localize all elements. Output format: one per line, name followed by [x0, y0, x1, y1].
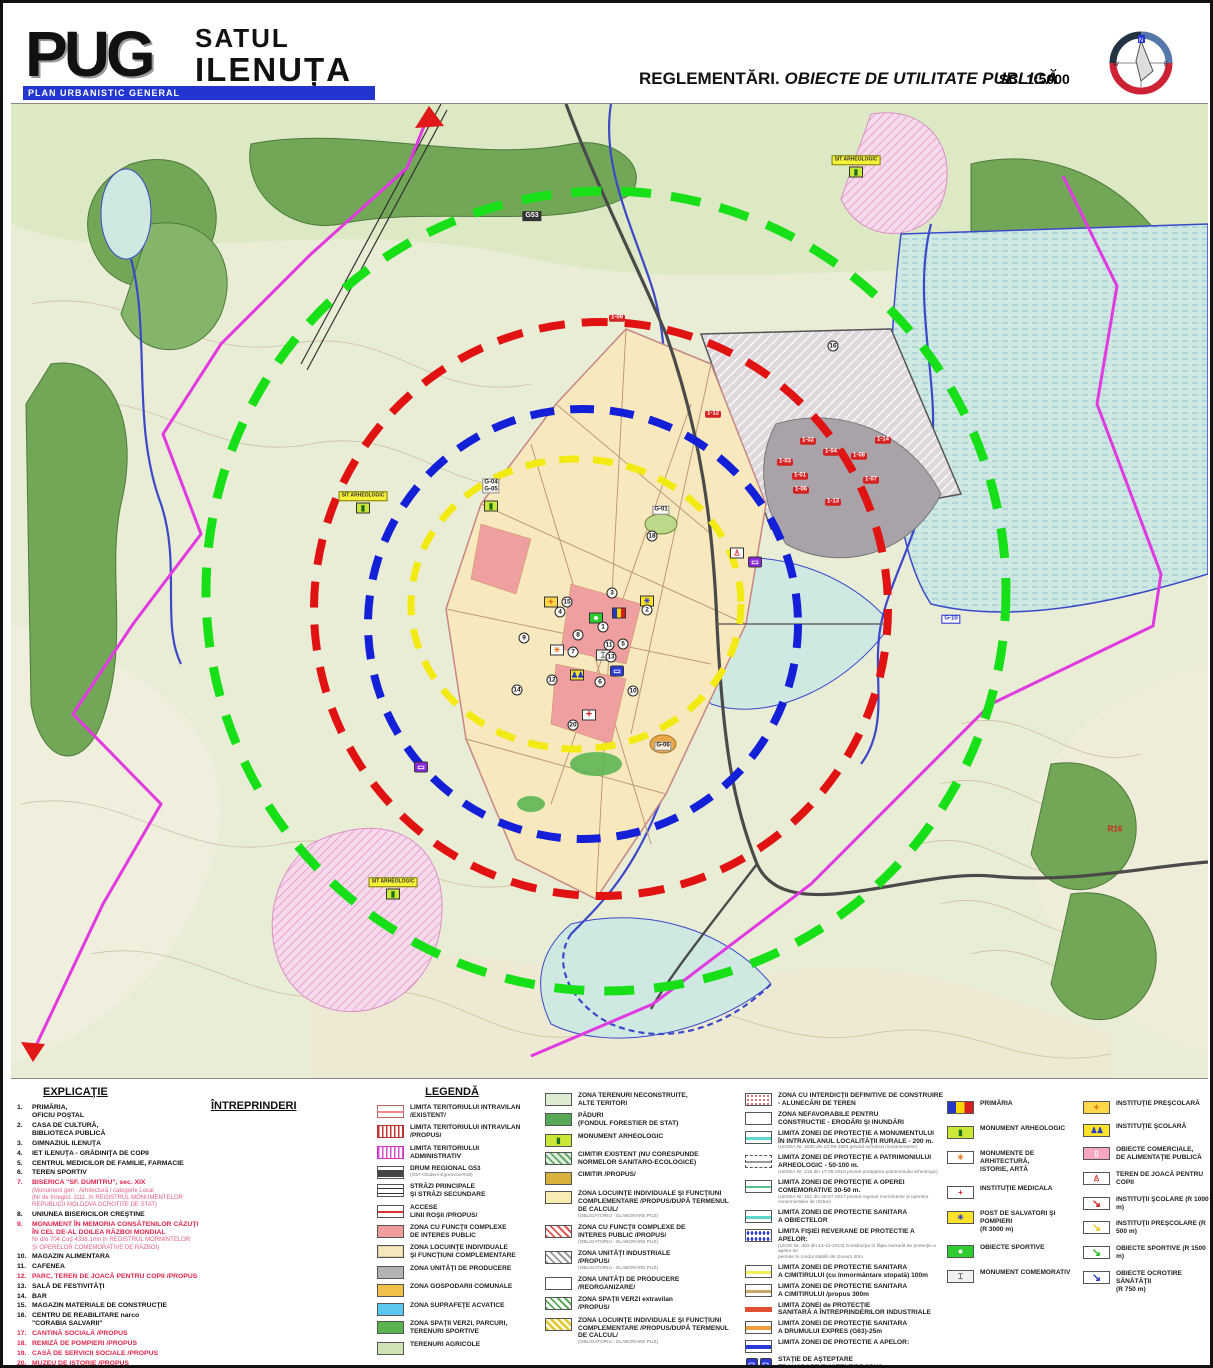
map-label: 1-12 — [705, 411, 721, 418]
map-number-marker: 13 — [606, 652, 617, 663]
item-number: 18. — [17, 1340, 32, 1348]
legend-row: LIMITA ZONEI DE PROTECTIE SANITARA A OBI… — [745, 1209, 943, 1225]
map-label: 1-03 — [777, 459, 793, 466]
legend-row: PĂDURI (FONDUL FORESTIER DE STAT) — [545, 1112, 741, 1128]
legend-label: LIMITA FIŞIEI REVERANE DE PROTECTIE A AP… — [778, 1228, 915, 1243]
g-objects-column: ÎNTREPRINDERI — [211, 1086, 375, 1118]
legend-row: LIMITA ZONEI de PROTECŢIE SANITARĂ A ÎNT… — [745, 1302, 943, 1318]
legend-row: ZONA CU FUNCŢII COMPLEXE DE INTERES PUBL… — [545, 1224, 741, 1246]
map-number-marker: 5 — [618, 639, 629, 650]
village-label-ilenuta: ILENUȚA — [195, 51, 352, 89]
legend-row: ZONA LOCUINŢE INDIVIDUALE ŞI FUNCŢIUNI C… — [545, 1190, 741, 1219]
legend-label: ZONA SUPRAFEŢE ACVATICE — [410, 1302, 505, 1309]
compass-rose-icon: N E S W — [1109, 31, 1173, 95]
legend-label: CIMITIR /PROPUS/ — [578, 1171, 636, 1178]
item-number: 15. — [17, 1302, 32, 1310]
explicatie-item: 18. REMIZĂ DE POMPIERI /PROPUS — [17, 1340, 209, 1348]
legend-label: LIMITA ZONEI DE PROTECTIE SANITARA A CIM… — [778, 1264, 928, 1279]
sheet-title: REGLEMENTĂRI. OBIECTE DE UTILITATE PUBLI… — [639, 69, 1058, 89]
legend-label: ZONA UNITĂŢI INDUSTRIALE /PROPUS/ — [578, 1250, 670, 1265]
archeology-icon: ▮ — [356, 503, 370, 514]
legend-label: OBIECTE SPORTIVE — [980, 1244, 1044, 1252]
map-number-marker: 11 — [604, 640, 615, 651]
legend-symbol-icon — [1083, 1221, 1110, 1234]
legend-swatch — [745, 1155, 772, 1168]
legend-row: ZONA SPAŢII VERZI extravilan /PROPUS/ — [545, 1296, 741, 1312]
legend-label: ZONA LOCUINŢE INDIVIDUALE ŞI FUNCŢIUNI C… — [578, 1190, 729, 1213]
school-icon: ♟♟ — [570, 670, 584, 681]
legend-swatch — [377, 1146, 404, 1159]
item-text: MUZEU DE ISTORIE /PROPUS — [32, 1360, 129, 1367]
legend-row: OBIECTE OCROTIRE SĂNĂTĂŢII (R 750 m) — [1083, 1270, 1211, 1294]
legenda-list-1: LIMITA TERITORIULUI INTRAVILAN /EXISTENT… — [377, 1104, 545, 1355]
legend-row: LIMITA ZONEI DE PROTECTIE SANITARA A CIM… — [745, 1264, 943, 1280]
legend-label: PĂDURI (FONDUL FORESTIER DE STAT) — [578, 1112, 678, 1127]
legend-label: STRĂZI PRINCIPALE ŞI STRĂZI SECUNDARE — [410, 1183, 485, 1198]
map-number-marker: 4 — [555, 607, 566, 618]
legend-label: ZONA UNITĂŢI DE PRODUCERE — [410, 1265, 511, 1272]
item-number: 3. — [17, 1140, 32, 1148]
legend-label: LIMITA TERITORIULUI ADMINISTRATIV — [410, 1145, 479, 1160]
legend-note: (OBLIGATORIU - ELABORARE PUZ) — [578, 1266, 670, 1272]
bus-station-proposed-icon: ▭ — [748, 557, 762, 568]
explicatie-item: 13. SALĂ DE FESTIVITĂŢI — [17, 1283, 209, 1291]
legend-label: OBIECTE OCROTIRE SĂNĂTĂŢII (R 750 m) — [1116, 1270, 1211, 1294]
legend-row: ZONA SPAŢII VERZI, PARCURI, TERENURI SPO… — [377, 1320, 545, 1336]
legend-symbol-icon — [947, 1101, 974, 1114]
medical-icon: + — [582, 710, 596, 721]
legend-symbol-icon: ♟♟ — [1083, 1124, 1110, 1137]
item-text: CENTRU DE REABILITARE narco "CORABIA SAL… — [32, 1312, 139, 1327]
legend-label: ZONA LOCUINŢE INDIVIDUALE ŞI FUNCŢIUNI C… — [410, 1244, 516, 1259]
explicatie-item: 11. CAFENEA — [17, 1263, 209, 1271]
legend-swatch — [545, 1093, 572, 1106]
explicatie-item: 1. PRIMĂRIA, OFICIU POŞTAL — [17, 1104, 209, 1121]
legend-row: INSTITUŢII ŞCOLARE (R 1000 m) — [1083, 1196, 1211, 1212]
legend-swatch — [377, 1205, 404, 1218]
legend-row: PRIMĂRIA — [947, 1100, 1077, 1114]
explicatie-item: 17. CANTINĂ SOCIALĂ /PROPUS — [17, 1330, 209, 1338]
explicatie-item: 2. CASA DE CULTURĂ, BIBLIOTECA PUBLICĂ — [17, 1122, 209, 1139]
item-note: (Monument gen - Arhitectură / categorie … — [32, 1188, 183, 1210]
legend-swatch — [377, 1166, 404, 1179]
bus-station-proposed-icon: ▭ — [414, 762, 428, 773]
legend-label: MONUMENTE DE ARHITECTURĂ, ISTORIE, ARTĂ — [980, 1150, 1077, 1174]
explicatie-item: 20. MUZEU DE ISTORIE /PROPUS — [17, 1360, 209, 1368]
map-label: SIT ARHEOLOGIC — [369, 877, 418, 887]
legend-swatch — [377, 1284, 404, 1297]
legend-row: ZONA GOSPODARII COMUNALE — [377, 1283, 545, 1297]
item-note: Nr d/o 704 Cod 4338.1mn în REGISTRUL MOR… — [32, 1237, 198, 1252]
legend-row: LIMITA ZONEI DE PROTECŢIE A OPEREI COMEM… — [745, 1179, 943, 1206]
legend-label: MONUMENT ARHEOLOGIC — [980, 1125, 1065, 1133]
legenda-column-2: ZONA TERENURI NECONSTRUITE, ALTE TERITOR… — [545, 1092, 741, 1351]
legend-label: INSTITUŢII ŞCOLARE (R 1000 m) — [1116, 1196, 1211, 1212]
item-number: 8. — [17, 1211, 32, 1219]
item-number: 20. — [17, 1360, 32, 1368]
explicatie-item: 14. BAR — [17, 1293, 209, 1301]
legend-row: ZONA LOCUINŢE INDIVIDUALE ŞI FUNCŢIUNI C… — [545, 1317, 741, 1346]
compass-s: S — [1139, 88, 1143, 94]
legend-note: (LEGEA Nr. 1530 din 22-06-1993 privind o… — [778, 1145, 934, 1151]
map-number-marker: 7 — [568, 647, 579, 658]
legend-label: LIMITA ZONEI DE PROTECŢIE A OPEREI COMEM… — [778, 1179, 905, 1194]
item-number: 17. — [17, 1330, 32, 1338]
map-label: 1-09 — [609, 315, 625, 322]
legend-row: OBIECTE SPORTIVE (R 1500 m) — [1083, 1245, 1211, 1261]
map-number-marker: 16 — [828, 341, 839, 352]
legend-label: INSTITUŢII PREŞCOLARE (R 500 m) — [1116, 1220, 1211, 1236]
legend-row: ZONA SUPRAFEŢE ACVATICE — [377, 1302, 545, 1316]
sheet-title-normal: REGLEMENTĂRI. — [639, 69, 780, 88]
legend-note: (LEGEA Nr. 161 din 20-07-2017 privind re… — [778, 1195, 943, 1207]
legend-label: ZONA LOCUINŢE INDIVIDUALE ŞI FUNCŢIUNI C… — [578, 1317, 729, 1340]
legend-swatch — [745, 1265, 772, 1278]
legend-row: OBIECTE SPORTIVE — [947, 1244, 1077, 1258]
pug-logo: PUG — [25, 17, 152, 91]
legend-row: LIMITA TERITORIULUI INTRAVILAN /PROPUS/ — [377, 1124, 545, 1140]
item-text: REMIZĂ DE POMPIERI /PROPUS — [32, 1340, 137, 1347]
item-number: 11. — [17, 1263, 32, 1271]
item-text: CASA DE CULTURĂ, BIBLIOTECA PUBLICĂ — [32, 1122, 105, 1137]
legend-row: ▭▭ STAŢIE DE AŞTEPTARE TRANSPORT EXISTEN… — [745, 1356, 943, 1368]
legend-swatch — [377, 1321, 404, 1334]
legend-row: DRUM REGIONAL G53 (G57-Glodeni-Egorovca-… — [377, 1165, 545, 1179]
legenda-list-2: ZONA TERENURI NECONSTRUITE, ALTE TERITOR… — [545, 1092, 741, 1346]
map-area[interactable]: G53SIT ARHEOLOGICSIT ARHEOLOGICSIT ARHEO… — [11, 103, 1208, 1079]
item-text: CAFENEA — [32, 1263, 65, 1270]
map-number-marker: 9 — [519, 633, 530, 644]
legend-row: TERENURI AGRICOLE — [377, 1341, 545, 1355]
explicatie-column: EXPLICAŢIE 1. PRIMĂRIA, OFICIU POŞTAL 2.… — [17, 1086, 209, 1368]
compass-n: N — [1139, 38, 1143, 44]
legend-label: ZONA NEFAVORABILE PENTRU CONSTRUCTIE - E… — [778, 1111, 904, 1126]
legend-label: LIMITA ZONEI DE PROTECTIE SANITARA A CIM… — [778, 1283, 907, 1298]
legend-label: INSTITUŢIE PREŞCOLARĂ — [1116, 1100, 1200, 1108]
legend-symbol-icon: ✳ — [947, 1151, 974, 1164]
legend-row: LIMITA ZONEI DE PROTECTIE A APELOR: — [745, 1339, 943, 1353]
map-label: G53 — [522, 211, 541, 221]
item-number: 14. — [17, 1293, 32, 1301]
legend-label: ACCESE LINII ROŞII /PROPUS/ — [410, 1204, 477, 1219]
legend-swatch — [377, 1303, 404, 1316]
legend-swatch — [377, 1225, 404, 1238]
legend-swatch — [745, 1340, 772, 1353]
archeology-icon: ▮ — [484, 501, 498, 512]
map-number-marker: 2 — [642, 605, 653, 616]
symbols-list-1: PRIMĂRIA ▮ MONUMENT ARHEOLOGIC ✳ MONUMEN… — [947, 1100, 1077, 1283]
map-label: G-06 — [654, 742, 671, 751]
explicatie-item: 8. UNIUNEA BISERICILOR CREŞTINE — [17, 1211, 209, 1219]
item-text: PARC, TEREN DE JOACĂ PENTRU COPII /PROPU… — [32, 1273, 197, 1280]
explicatie-title: EXPLICAŢIE — [43, 1086, 209, 1098]
symbols-column-1: PRIMĂRIA ▮ MONUMENT ARHEOLOGIC ✳ MONUMEN… — [947, 1100, 1077, 1294]
map-number-marker: 15 — [562, 597, 573, 608]
item-number: 16. — [17, 1312, 32, 1329]
legend-swatch — [545, 1251, 572, 1264]
map-number-marker: 12 — [547, 675, 558, 686]
legend-label: PRIMĂRIA — [980, 1100, 1013, 1108]
legend-row: ♟♟ INSTITUŢIE ŞCOLARĂ — [1083, 1123, 1211, 1137]
item-text: BAR — [32, 1293, 47, 1300]
sheet-header: PUG SATUL ILENUȚA PLAN URBANISTIC GENERA… — [3, 3, 1210, 100]
legend-row: ZONA LOCUINŢE INDIVIDUALE ŞI FUNCŢIUNI C… — [377, 1244, 545, 1260]
legend-row: CIMITIR /PROPUS/ — [545, 1171, 741, 1185]
map-label: 1-06 — [793, 487, 809, 494]
explicatie-item: 16. CENTRU DE REABILITARE narco "CORABIA… — [17, 1312, 209, 1329]
legend-label: LIMITA TERITORIULUI INTRAVILAN /PROPUS/ — [410, 1124, 520, 1139]
legend-swatch — [545, 1191, 572, 1204]
pug-sheet: PUG SATUL ILENUȚA PLAN URBANISTIC GENERA… — [0, 0, 1213, 1368]
map-label: G-10 — [941, 615, 960, 624]
legend-swatch — [545, 1113, 572, 1126]
explicatie-item: 10. MAGAZIN ALIMENTARA — [17, 1253, 209, 1261]
legend-label: ZONA SPAŢII VERZI, PARCURI, TERENURI SPO… — [410, 1320, 507, 1335]
map-number-marker: 14 — [512, 685, 523, 696]
item-text: GIMNAZIUL ILENUŢA — [32, 1140, 101, 1147]
legend-note: (OBLIGATORIU - ELABORARE PUZ) — [578, 1340, 729, 1346]
legend-label: INSTITUŢIE MEDICALA — [980, 1185, 1053, 1193]
map-label: 1-14 — [875, 437, 891, 444]
legend-row: CIMITIR EXISTENT (NU CORESPUNDE NORMELOR… — [545, 1151, 741, 1167]
map-number-marker: 10 — [628, 686, 639, 697]
map-number-marker: 18 — [647, 531, 658, 542]
map-label: G-01 — [652, 506, 669, 515]
legend-note: (LEGE Nr. 303 din 13-12-2013) Construcţi… — [778, 1244, 943, 1261]
legend-row: ZONA UNITĂŢI DE PRODUCERE — [377, 1265, 545, 1279]
legend-swatch — [545, 1172, 572, 1185]
item-text: TEREN SPORTIV — [32, 1169, 87, 1176]
legend-swatch — [545, 1318, 572, 1331]
legend-row: ACCESE LINII ROŞII /PROPUS/ — [377, 1204, 545, 1220]
legend-label: OBIECTE COMERCIALE, DE ALIMENTAŢIE PUBLI… — [1116, 1146, 1202, 1162]
architecture-monument-icon: ✳ — [550, 645, 564, 656]
legend-label: LIMITA ZONEI de PROTECŢIE SANITARĂ A ÎNT… — [778, 1302, 931, 1317]
legend-row: LIMITA TERITORIULUI ADMINISTRATIV — [377, 1145, 545, 1161]
legend-note: (OBLIGATORIU - ELABORARE PUZ) — [578, 1214, 729, 1220]
legend-row: LIMITA ZONEI DE PROTECŢIE A MONUMENTULUI… — [745, 1130, 943, 1152]
legend-label: ZONA CU INTERDICŢII DEFINITIVE DE CONSTR… — [778, 1092, 943, 1107]
legend-label: TERENURI AGRICOLE — [410, 1341, 480, 1348]
legend-row: ✳ POST DE SALVATORI ŞI POMPIERI (R 3000 … — [947, 1210, 1077, 1234]
legend-label: STAŢIE DE AŞTEPTARE TRANSPORT EXISTENT/P… — [778, 1356, 883, 1368]
map-label: SIT ARHEOLOGIC — [339, 491, 388, 501]
compass-w: W — [1113, 62, 1119, 68]
explicatie-item: 15. MAGAZIN MATERIALE DE CONSTRUCŢIE — [17, 1302, 209, 1310]
map-number-marker: 8 — [573, 630, 584, 641]
legend-label: ZONA SPAŢII VERZI extravilan /PROPUS/ — [578, 1296, 673, 1311]
item-number: 12. — [17, 1273, 32, 1281]
village-label-satul: SATUL — [195, 23, 290, 54]
item-number: 9. — [17, 1221, 32, 1252]
item-number: 5. — [17, 1160, 32, 1168]
legend-row: ⌶ MONUMENT COMEMORATIV — [947, 1269, 1077, 1283]
legend-symbol-icon: ▮ — [947, 1126, 974, 1139]
legend-row: STRĂZI PRINCIPALE ŞI STRĂZI SECUNDARE — [377, 1183, 545, 1199]
legend-label: LIMITA ZONEI DE PROTECŢIE SANITARA A DRU… — [778, 1320, 907, 1335]
legend-label: ZONA CU FUNCŢII COMPLEXE DE INTERES PUBL… — [410, 1224, 506, 1239]
legend-label: LIMITA TERITORIULUI INTRAVILAN /EXISTENT… — [410, 1104, 520, 1119]
explicatie-item: 6. TEREN SPORTIV — [17, 1169, 209, 1177]
legend-symbol-icon: ▯ — [1083, 1147, 1110, 1160]
legend-symbol-icon — [1083, 1246, 1110, 1259]
explicatie-item: 19. CASĂ DE SERVICII SOCIALE /PROPUS — [17, 1350, 209, 1358]
legend-row: ZONA UNITĂŢI INDUSTRIALE /PROPUS/ (OBLIG… — [545, 1250, 741, 1272]
legend-symbol-icon: ⌶ — [947, 1270, 974, 1283]
legend-label: INSTITUŢIE ŞCOLARĂ — [1116, 1123, 1186, 1131]
primaria-flag-icon — [612, 608, 626, 619]
legend-label: MONUMENT COMEMORATIV — [980, 1269, 1070, 1277]
item-number: 2. — [17, 1122, 32, 1139]
legend-swatch — [745, 1093, 772, 1106]
map-label: R16 — [1108, 826, 1123, 835]
legenda-column-1: LEGENDĂ LIMITA TERITORIULUI INTRAVILAN /… — [377, 1086, 545, 1359]
explicatie-item: 5. CENTRUL MEDICILOR DE FAMILIE, FARMACI… — [17, 1160, 209, 1168]
item-text: SALĂ DE FESTIVITĂŢI — [32, 1283, 105, 1290]
explicatie-list: 1. PRIMĂRIA, OFICIU POŞTAL 2. CASA DE CU… — [17, 1104, 209, 1368]
legend-note: (OBLIGATORIU - ELABORARE PUZ) — [578, 1240, 685, 1246]
legend-swatch — [745, 1112, 772, 1125]
legend-swatch — [377, 1184, 404, 1197]
item-text: MAGAZIN MATERIALE DE CONSTRUCŢIE — [32, 1302, 167, 1309]
legend-row: ✳ MONUMENTE DE ARHITECTURĂ, ISTORIE, ART… — [947, 1150, 1077, 1174]
item-number: 10. — [17, 1253, 32, 1261]
legend-label: TEREN DE JOACĂ PENTRU COPII — [1116, 1171, 1211, 1187]
symbols-column-2: ✦ INSTITUŢIE PREŞCOLARĂ ♟♟ INSTITUŢIE ŞC… — [1083, 1100, 1211, 1303]
item-number: 6. — [17, 1169, 32, 1177]
item-number: 19. — [17, 1350, 32, 1358]
legend-row: ZONA CU FUNCŢII COMPLEXE DE INTERES PUBL… — [377, 1224, 545, 1240]
item-text: CASĂ DE SERVICII SOCIALE /PROPUS — [32, 1350, 158, 1357]
legend-label: LIMITA ZONEI DE PROTECTIE SANITARA A OBI… — [778, 1209, 907, 1224]
legend-area: EXPLICAŢIE 1. PRIMĂRIA, OFICIU POŞTAL 2.… — [3, 1080, 1213, 1368]
legend-swatch — [545, 1152, 572, 1165]
map-label: SIT ARHEOLOGIC — [832, 155, 881, 165]
legend-row: ♙ TEREN DE JOACĂ PENTRU COPII — [1083, 1171, 1211, 1187]
item-text: BISERICA "SF. DUMITRU", sec. XIX — [32, 1179, 145, 1186]
legend-row: + INSTITUŢIE MEDICALA — [947, 1185, 1077, 1199]
legend-swatch: ▮ — [545, 1134, 572, 1147]
legend-swatch — [745, 1321, 772, 1334]
item-number: 4. — [17, 1150, 32, 1158]
legend-label: LIMITA ZONEI DE PROTECTIE A APELOR: — [778, 1339, 909, 1346]
legend-label: CIMITIR EXISTENT (NU CORESPUNDE NORMELOR… — [578, 1151, 699, 1166]
item-text: MAGAZIN ALIMENTARA — [32, 1253, 110, 1260]
legend-note: (G57-Glodeni-Egorovca-R16) — [410, 1173, 481, 1179]
legend-swatch: ▭▭ — [745, 1357, 772, 1368]
legend-row: INSTITUŢII PREŞCOLARE (R 500 m) — [1083, 1220, 1211, 1236]
legend-symbol-icon: ✳ — [947, 1211, 974, 1224]
intreprinderi-title: ÎNTREPRINDERI — [211, 1100, 375, 1112]
legend-row: ▮ MONUMENT ARHEOLOGIC — [545, 1133, 741, 1147]
legend-symbol-icon — [1083, 1271, 1110, 1284]
playground-icon: ♙ — [730, 548, 744, 559]
legend-row: ▮ MONUMENT ARHEOLOGIC — [947, 1125, 1077, 1139]
legend-row: ZONA TERENURI NECONSTRUITE, ALTE TERITOR… — [545, 1092, 741, 1108]
item-number: 1. — [17, 1104, 32, 1121]
legend-row: LIMITA TERITORIULUI INTRAVILAN /EXISTENT… — [377, 1104, 545, 1120]
legend-row: LIMITA ZONEI DE PROTECŢIE SANITARA A DRU… — [745, 1320, 943, 1336]
legend-row: LIMITA FIŞIEI REVERANE DE PROTECTIE A AP… — [745, 1228, 943, 1261]
map-number-marker: 3 — [607, 588, 618, 599]
legend-swatch — [745, 1229, 772, 1242]
map-label: 1-04 — [823, 449, 839, 456]
legend-swatch — [377, 1266, 404, 1279]
bus-station-icon: ▭ — [610, 666, 624, 677]
legend-swatch — [745, 1303, 772, 1316]
legenda-list-3: ZONA CU INTERDICŢII DEFINITIVE DE CONSTR… — [745, 1092, 943, 1368]
explicatie-item: 12. PARC, TEREN DE JOACĂ PENTRU COPII /P… — [17, 1273, 209, 1281]
map-label: 1-01 — [792, 473, 808, 480]
legend-label: ZONA GOSPODARII COMUNALE — [410, 1283, 512, 1290]
legend-row: LIMITA ZONEI DE PROTECŢIE A PATRIMONIULU… — [745, 1154, 943, 1176]
legend-row: ✦ INSTITUŢIE PREŞCOLARĂ — [1083, 1100, 1211, 1114]
plan-urbanistic-bar: PLAN URBANISTIC GENERAL — [23, 86, 375, 100]
map-number-marker: 20 — [568, 720, 579, 731]
map-label: 1-07 — [863, 477, 879, 484]
legend-label: DRUM REGIONAL G53 — [410, 1165, 481, 1172]
archeology-icon: ▮ — [386, 889, 400, 900]
legend-swatch — [745, 1284, 772, 1297]
sheet-scale: SC. 1:5000 — [999, 71, 1070, 87]
map-label: 1-08 — [851, 453, 867, 460]
legend-symbol-icon: ♙ — [1083, 1172, 1110, 1185]
lake — [891, 224, 1208, 612]
legend-swatch — [377, 1125, 404, 1138]
archeology-icon: ▮ — [849, 167, 863, 178]
compass-e: E — [1164, 62, 1168, 68]
explicatie-item: 4. IET ILENUŢA - GRĂDINIŢA DE COPII — [17, 1150, 209, 1158]
legend-label: ZONA TERENURI NECONSTRUITE, ALTE TERITOR… — [578, 1092, 688, 1107]
map-label: 1-02 — [800, 438, 816, 445]
item-text: IET ILENUŢA - GRĂDINIŢA DE COPII — [32, 1150, 149, 1157]
item-text: CANTINĂ SOCIALĂ /PROPUS — [32, 1330, 128, 1337]
legend-row: ▯ OBIECTE COMERCIALE, DE ALIMENTAŢIE PUB… — [1083, 1146, 1211, 1162]
item-number: 7. — [17, 1179, 32, 1209]
legend-swatch — [377, 1105, 404, 1118]
legend-label: ZONA CU FUNCŢII COMPLEXE DE INTERES PUBL… — [578, 1224, 685, 1239]
legend-row: ZONA CU INTERDICŢII DEFINITIVE DE CONSTR… — [745, 1092, 943, 1108]
legend-swatch — [745, 1180, 772, 1193]
legend-symbol-icon: + — [947, 1186, 974, 1199]
legend-swatch — [745, 1131, 772, 1144]
map-label: G-04 G-05 — [482, 478, 499, 493]
legend-note: (LEGEA Nr. 218 din 17-09-2010 privind pr… — [778, 1170, 938, 1176]
item-text: CENTRUL MEDICILOR DE FAMILIE, FARMACIE — [32, 1160, 184, 1167]
legend-row: ZONA UNITĂŢI DE PRODUCERE /REORGANIZARE/ — [545, 1276, 741, 1292]
item-number: 13. — [17, 1283, 32, 1291]
explicatie-item: 3. GIMNAZIUL ILENUŢA — [17, 1140, 209, 1148]
legend-label: LIMITA ZONEI DE PROTECŢIE A PATRIMONIULU… — [778, 1154, 931, 1169]
explicatie-item: 7. BISERICA "SF. DUMITRU", sec. XIX (Mon… — [17, 1179, 209, 1209]
legend-swatch — [377, 1245, 404, 1258]
item-text: UNIUNEA BISERICILOR CREŞTINE — [32, 1211, 145, 1218]
legenda-column-3: ZONA CU INTERDICŢII DEFINITIVE DE CONSTR… — [745, 1092, 943, 1368]
legend-swatch — [745, 1210, 772, 1223]
map-label: 1-13 — [825, 499, 841, 506]
legend-label: ZONA UNITĂŢI DE PRODUCERE /REORGANIZARE/ — [578, 1276, 679, 1291]
legend-symbol-icon — [1083, 1197, 1110, 1210]
legend-label: OBIECTE SPORTIVE (R 1500 m) — [1116, 1245, 1211, 1261]
preschool-icon: ✦ — [544, 597, 558, 608]
symbols-list-2: ✦ INSTITUŢIE PREŞCOLARĂ ♟♟ INSTITUŢIE ŞC… — [1083, 1100, 1211, 1294]
legend-row: LIMITA ZONEI DE PROTECTIE SANITARA A CIM… — [745, 1283, 943, 1299]
map-number-marker: 1 — [598, 622, 609, 633]
legenda-title: LEGENDĂ — [377, 1086, 527, 1098]
item-text: PRIMĂRIA, OFICIU POŞTAL — [32, 1104, 84, 1119]
legend-symbol-icon — [947, 1245, 974, 1258]
legend-swatch — [545, 1277, 572, 1290]
